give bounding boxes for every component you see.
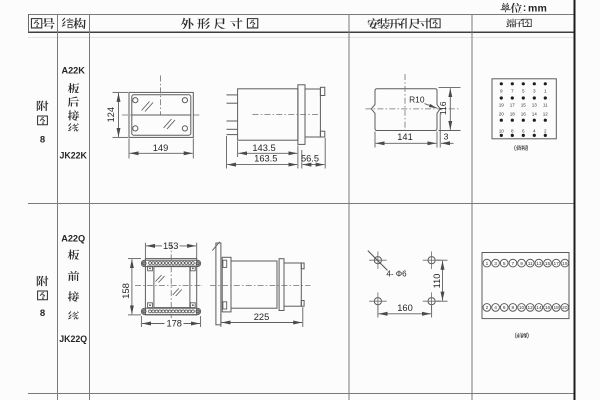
svg-text:3: 3 [494, 261, 497, 267]
svg-text:116: 116 [438, 101, 448, 115]
svg-text:19: 19 [499, 103, 505, 108]
svg-text:8: 8 [511, 128, 514, 133]
svg-text:12: 12 [528, 305, 534, 311]
svg-text:13: 13 [536, 261, 542, 267]
svg-text:11: 11 [543, 103, 548, 108]
svg-text:124: 124 [106, 107, 116, 122]
svg-text:mm: mm [528, 2, 547, 14]
svg-text:6: 6 [503, 305, 506, 311]
svg-text:4- Φ6: 4- Φ6 [386, 270, 407, 279]
svg-text:R10: R10 [409, 95, 425, 105]
svg-text:10: 10 [499, 128, 505, 133]
svg-text:153: 153 [163, 241, 179, 251]
svg-text:225: 225 [254, 312, 270, 322]
svg-text:9: 9 [500, 89, 503, 94]
svg-text:11: 11 [528, 261, 533, 267]
svg-text:141: 141 [397, 132, 413, 142]
svg-text:110: 110 [432, 274, 442, 289]
svg-text:7: 7 [512, 261, 515, 267]
svg-text:13: 13 [532, 103, 538, 108]
svg-text:178: 178 [166, 318, 182, 328]
svg-text:2: 2 [544, 128, 547, 133]
svg-text:8: 8 [512, 305, 515, 311]
svg-text:2: 2 [486, 305, 489, 311]
svg-text:A22K: A22K [61, 66, 85, 76]
svg-text:): ) [526, 146, 528, 152]
svg-text:5: 5 [503, 261, 506, 267]
svg-text:3: 3 [533, 89, 536, 94]
svg-text:19: 19 [562, 261, 568, 267]
svg-text:4: 4 [533, 128, 536, 133]
svg-text:18: 18 [510, 112, 516, 117]
svg-text:8: 8 [40, 308, 45, 319]
svg-text:1: 1 [486, 261, 489, 267]
svg-text:56.5: 56.5 [301, 154, 319, 164]
svg-text:17: 17 [510, 103, 516, 108]
svg-text:14: 14 [532, 112, 538, 117]
svg-text:7: 7 [511, 89, 514, 94]
svg-text:12: 12 [543, 112, 549, 117]
svg-text:15: 15 [545, 261, 551, 267]
svg-text:JK22K: JK22K [60, 151, 88, 161]
svg-text:(: ( [515, 333, 517, 339]
svg-text:20: 20 [499, 112, 505, 117]
svg-text:JK22Q: JK22Q [59, 334, 87, 344]
svg-text:20: 20 [562, 305, 568, 311]
svg-text:(: ( [514, 146, 516, 152]
svg-text:18: 18 [554, 305, 560, 311]
svg-text:5: 5 [522, 89, 525, 94]
svg-text:4: 4 [494, 305, 497, 311]
svg-text:158: 158 [121, 283, 132, 299]
svg-text:160: 160 [397, 303, 413, 313]
svg-text:16: 16 [521, 112, 527, 117]
svg-text:8: 8 [40, 134, 45, 145]
svg-text:163.5: 163.5 [254, 154, 277, 164]
svg-text:149: 149 [153, 143, 169, 153]
svg-text:14: 14 [536, 305, 542, 311]
svg-text:A22Q: A22Q [61, 233, 85, 243]
svg-text:6: 6 [522, 128, 525, 133]
svg-text:9: 9 [520, 261, 523, 267]
svg-text:): ) [527, 333, 529, 339]
svg-text::: : [523, 3, 526, 14]
svg-text:143.5: 143.5 [252, 143, 275, 153]
svg-text:17: 17 [554, 261, 560, 267]
svg-text:15: 15 [521, 103, 527, 108]
svg-text:3: 3 [444, 132, 449, 142]
svg-text:1: 1 [544, 89, 547, 94]
svg-text:10: 10 [519, 305, 525, 311]
svg-text:16: 16 [545, 305, 551, 311]
